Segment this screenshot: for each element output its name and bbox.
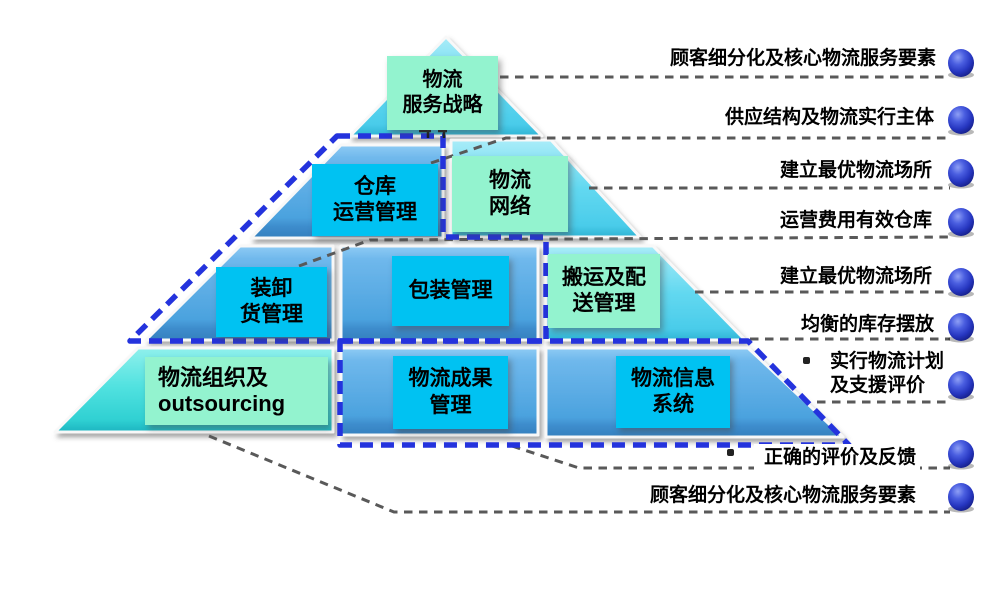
annotation-markers bbox=[948, 49, 974, 513]
blue-sphere-icon bbox=[948, 268, 974, 298]
pyramid-box-results: 物流成果 管理 bbox=[393, 356, 508, 429]
blue-sphere-icon bbox=[948, 440, 974, 470]
annotation-label-6: 均衡的库存摆放 bbox=[801, 313, 934, 337]
bullet-dot bbox=[803, 357, 810, 364]
pyramid-box-strategy: 物流 服务战略 bbox=[387, 56, 498, 130]
pyramid-box-packaging: 包装管理 bbox=[392, 256, 509, 326]
logistics-pyramid-diagram: 物流 服务战略 仓库 运营管理 物流 网络 装卸 货管理 包装管理 搬运及配 送… bbox=[0, 0, 1000, 590]
blue-sphere-icon bbox=[948, 106, 974, 136]
pyramid-box-loading: 装卸 货管理 bbox=[216, 267, 327, 337]
blue-sphere-icon bbox=[948, 483, 974, 513]
annotation-label-7: 实行物流计划 及支援评价 bbox=[830, 350, 944, 398]
blue-sphere-icon bbox=[948, 49, 974, 79]
pyramid-box-handling-delivery: 搬运及配 送管理 bbox=[548, 254, 660, 328]
annotation-label-8: 正确的评价及反馈 bbox=[754, 444, 920, 482]
annotation-label-3: 建立最优物流场所 bbox=[780, 159, 932, 183]
annotation-label-9: 顾客细分化及核心物流服务要素 bbox=[650, 484, 916, 508]
blue-sphere-icon bbox=[948, 159, 974, 189]
annotation-label-1: 顾客细分化及核心物流服务要素 bbox=[670, 47, 936, 71]
blue-sphere-icon bbox=[948, 313, 974, 343]
blue-sphere-icon bbox=[948, 371, 974, 401]
pyramid-box-organization: 物流组织及 outsourcing bbox=[145, 357, 328, 425]
pyramid-box-network: 物流 网络 bbox=[452, 156, 568, 232]
blue-sphere-icon bbox=[948, 208, 974, 238]
annotation-label-5: 建立最优物流场所 bbox=[780, 265, 932, 289]
annotation-label-4: 运营费用有效仓库 bbox=[780, 209, 932, 233]
pyramid-box-information: 物流信息 系统 bbox=[616, 356, 730, 428]
annotation-label-2: 供应结构及物流实行主体 bbox=[725, 106, 934, 130]
bullet-dot bbox=[727, 449, 734, 456]
pyramid-box-warehouse-ops: 仓库 运营管理 bbox=[312, 164, 438, 236]
